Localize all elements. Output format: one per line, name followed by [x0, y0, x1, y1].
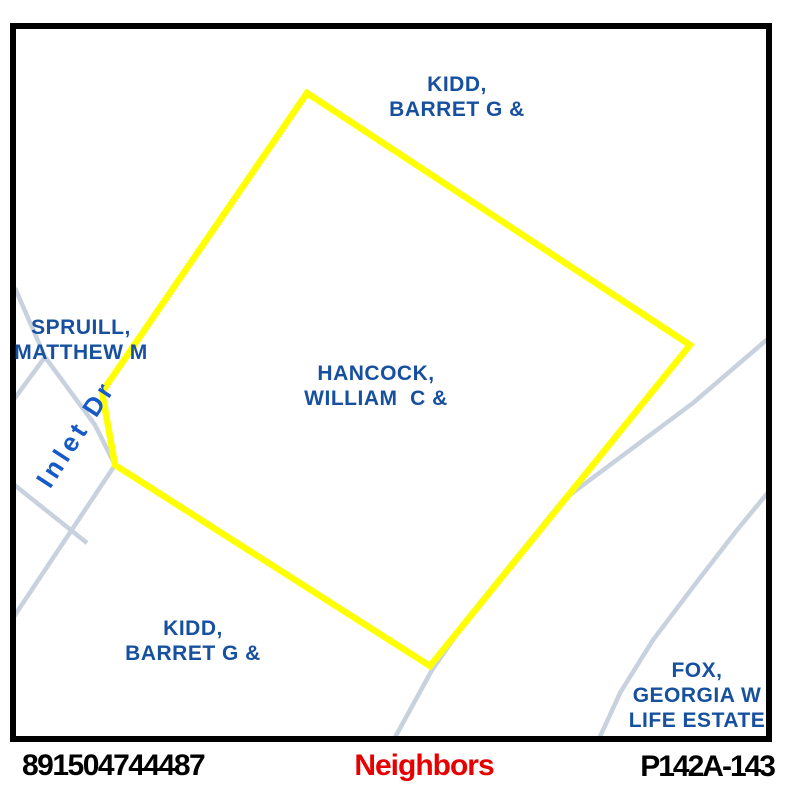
parcel-map-page: KIDD, BARRET G & SPRUILL, MATTHEW M HANC…	[0, 0, 800, 800]
owner-label-kidd-south: KIDD, BARRET G &	[125, 616, 261, 666]
view-title-text: Neighbors	[354, 750, 493, 782]
owner-label-hancock: HANCOCK, WILLIAM C &	[304, 361, 448, 411]
owner-label-kidd-north: KIDD, BARRET G &	[389, 72, 525, 122]
road-line	[12, 483, 87, 543]
map-sheet-text: P142A-143	[640, 751, 774, 783]
parcel-id-text: 891504744487	[22, 750, 204, 782]
owner-label-spruill: SPRUILL, MATTHEW M	[14, 315, 148, 365]
owner-label-fox: FOX, GEORGIA W LIFE ESTATE	[629, 658, 766, 733]
